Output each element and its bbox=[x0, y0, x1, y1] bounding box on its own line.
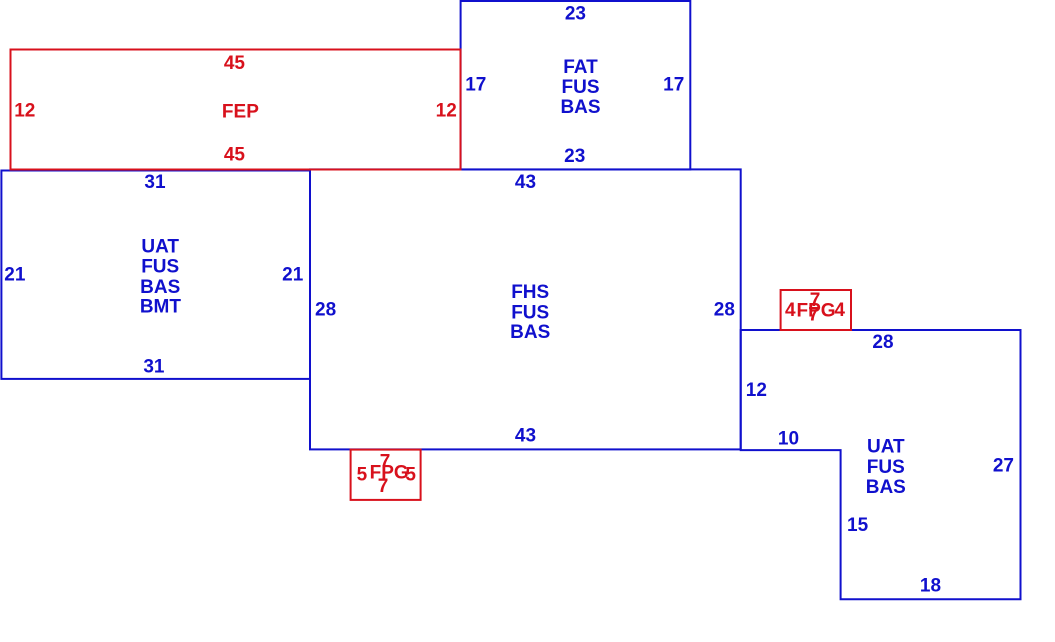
svg-text:FAT: FAT bbox=[563, 57, 598, 78]
svg-text:27: 27 bbox=[993, 455, 1014, 476]
svg-text:18: 18 bbox=[920, 575, 941, 596]
svg-text:28: 28 bbox=[872, 332, 893, 353]
svg-text:FUS: FUS bbox=[562, 77, 600, 98]
svg-text:23: 23 bbox=[564, 146, 585, 167]
svg-text:12: 12 bbox=[14, 100, 35, 121]
svg-text:5: 5 bbox=[357, 464, 368, 485]
svg-text:21: 21 bbox=[4, 265, 26, 286]
svg-text:12: 12 bbox=[436, 100, 457, 121]
svg-text:UAT: UAT bbox=[141, 236, 179, 257]
svg-text:BMT: BMT bbox=[140, 297, 182, 318]
svg-text:21: 21 bbox=[282, 265, 304, 286]
svg-text:BAS: BAS bbox=[140, 277, 180, 298]
svg-text:UAT: UAT bbox=[867, 437, 905, 458]
svg-text:FPG: FPG bbox=[370, 463, 409, 484]
svg-text:28: 28 bbox=[714, 300, 735, 321]
svg-text:5: 5 bbox=[405, 464, 416, 485]
svg-text:7: 7 bbox=[808, 305, 819, 326]
svg-text:4: 4 bbox=[785, 300, 796, 321]
svg-text:BAS: BAS bbox=[560, 97, 600, 118]
svg-text:FUS: FUS bbox=[141, 257, 179, 278]
svg-text:FHS: FHS bbox=[511, 282, 549, 303]
svg-text:FUS: FUS bbox=[511, 302, 549, 323]
svg-text:17: 17 bbox=[465, 74, 486, 95]
svg-text:43: 43 bbox=[515, 426, 536, 447]
svg-text:12: 12 bbox=[746, 380, 767, 401]
svg-text:FEP: FEP bbox=[222, 101, 259, 122]
svg-text:23: 23 bbox=[565, 4, 586, 25]
svg-text:43: 43 bbox=[515, 172, 536, 193]
svg-text:BAS: BAS bbox=[866, 477, 906, 498]
svg-text:10: 10 bbox=[778, 428, 799, 449]
svg-text:28: 28 bbox=[315, 300, 336, 321]
svg-text:4: 4 bbox=[834, 300, 845, 321]
svg-text:31: 31 bbox=[144, 172, 166, 193]
svg-text:17: 17 bbox=[663, 74, 684, 95]
svg-text:FUS: FUS bbox=[867, 457, 905, 478]
svg-text:45: 45 bbox=[224, 53, 246, 74]
svg-text:BAS: BAS bbox=[510, 322, 550, 343]
svg-text:7: 7 bbox=[378, 476, 389, 497]
svg-text:45: 45 bbox=[224, 144, 246, 165]
svg-text:15: 15 bbox=[847, 515, 869, 536]
svg-text:31: 31 bbox=[143, 357, 165, 378]
